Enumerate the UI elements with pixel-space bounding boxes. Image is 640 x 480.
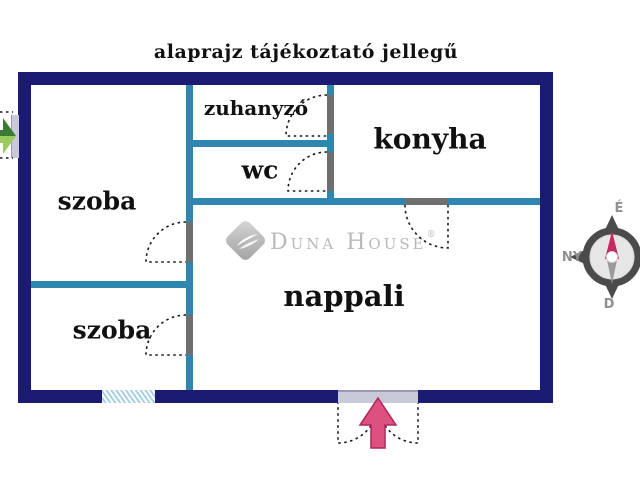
door-jamb-room-top <box>186 222 193 262</box>
main-entrance-pink-arrow <box>360 398 396 448</box>
room-label-szoba-top: szoba <box>58 187 137 216</box>
compass-label-south: D <box>604 297 615 312</box>
room-label-wc: wc <box>242 156 279 185</box>
wave-glyph <box>228 223 268 263</box>
wall-living-top <box>193 198 540 205</box>
room-label-nappali: nappali <box>283 279 404 313</box>
side-entrance-opening <box>11 115 19 158</box>
door-jamb-room-bottom <box>186 315 193 355</box>
room-label-konyha: konyha <box>373 123 486 156</box>
entrance-door-arc-left <box>338 403 378 443</box>
compass-icon: É NY D <box>562 200 640 312</box>
room-label-zuhanyzo: zuhanyzó <box>204 96 308 120</box>
door-jamb-shower <box>327 95 334 134</box>
door-jamb-kitchen <box>405 198 448 205</box>
window <box>102 390 155 403</box>
wall-shower-wc-divider <box>193 140 327 147</box>
registered-mark: ® <box>427 230 436 240</box>
plan-title: alaprajz tájékoztató jellegű <box>0 41 612 63</box>
compass-label-north: É <box>615 200 624 216</box>
room-label-szoba-bottom: szoba <box>73 316 152 345</box>
main-entrance-opening <box>338 390 418 403</box>
entrance-door-arc-right <box>378 403 418 443</box>
floorplan-canvas: alaprajz tájékoztató jellegű szoba zuhan… <box>0 0 640 480</box>
compass-needle-north <box>605 231 619 259</box>
door-jamb-wc <box>327 152 334 191</box>
compass-label-west: NY <box>562 250 583 265</box>
compass-needle-south <box>606 255 618 284</box>
wall-rooms-divider <box>31 281 186 288</box>
duna-house-logo-text: Duna House® <box>270 230 436 255</box>
